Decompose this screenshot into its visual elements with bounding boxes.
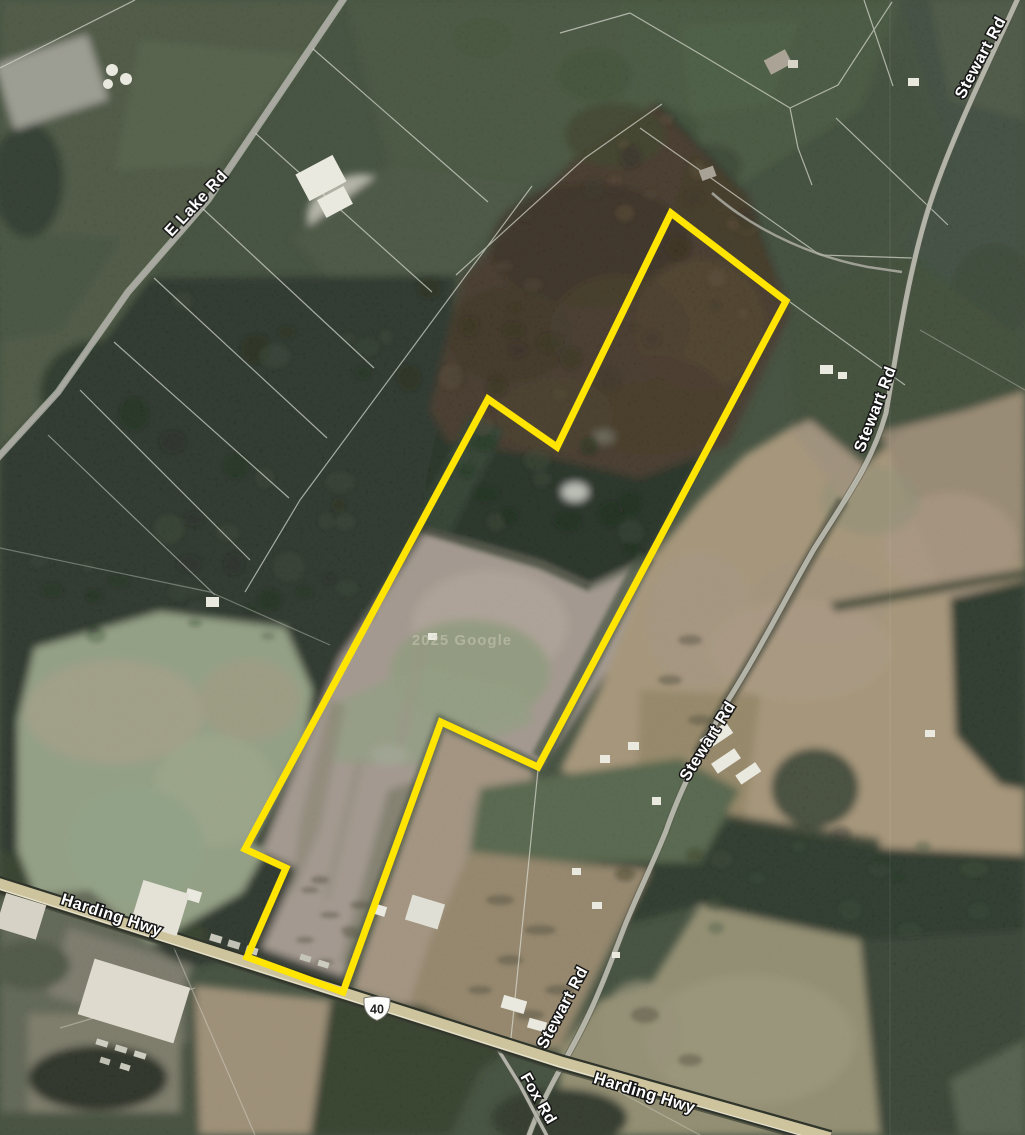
svg-text:2025 Google: 2025 Google bbox=[412, 632, 512, 649]
svg-text:40: 40 bbox=[370, 1003, 384, 1017]
